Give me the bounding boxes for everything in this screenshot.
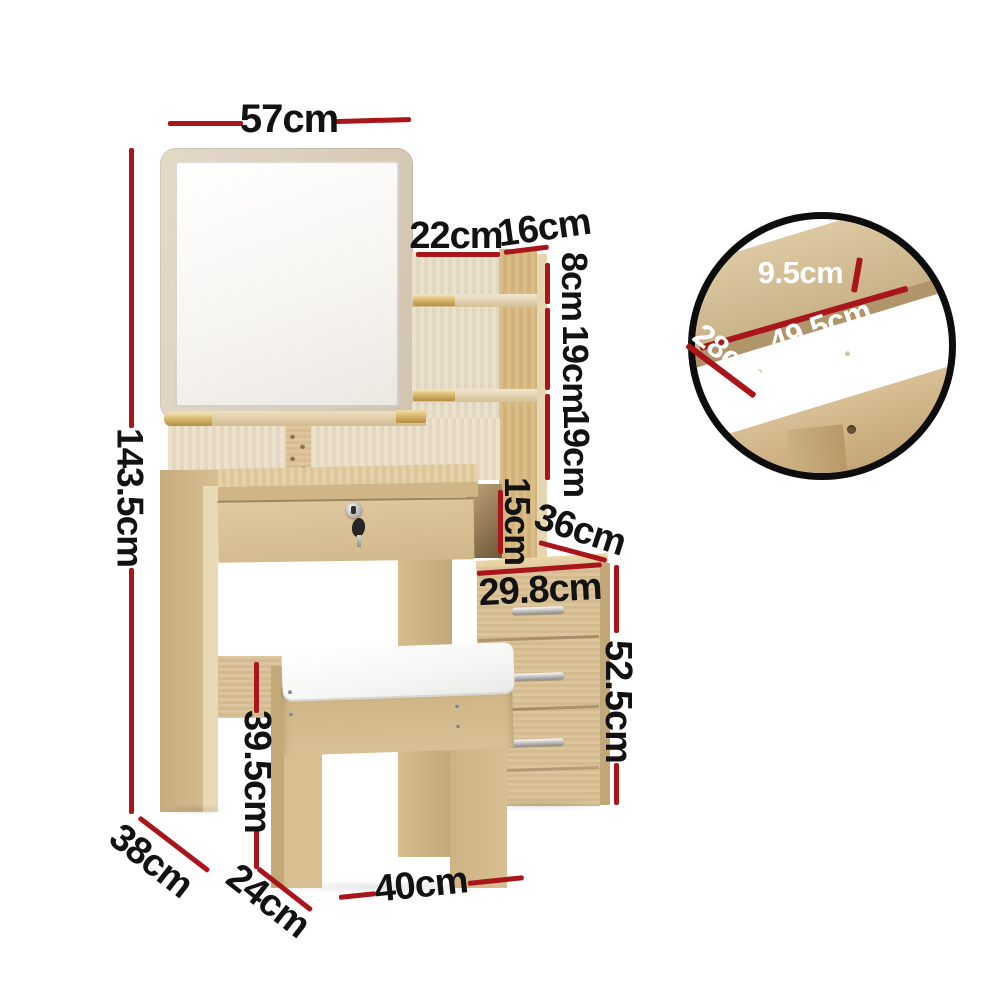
key-stem bbox=[357, 535, 361, 547]
screw bbox=[845, 351, 850, 356]
label-mirror-width: 57cm bbox=[214, 96, 364, 142]
label-gap-top: 8cm bbox=[552, 252, 596, 322]
screw bbox=[290, 434, 295, 439]
inset-keyhole bbox=[847, 425, 856, 434]
screw bbox=[455, 704, 459, 708]
screw bbox=[290, 456, 295, 461]
under-mirror-shelf-gold-left bbox=[164, 413, 212, 426]
label-drawer-depth: 9.5cm bbox=[748, 252, 853, 292]
screw bbox=[288, 690, 292, 694]
lock-keyhole bbox=[351, 506, 356, 514]
screw bbox=[289, 712, 293, 716]
label-overall-height: 143.5cm bbox=[106, 423, 154, 573]
shelf-gold-edge-upper bbox=[413, 295, 455, 306]
screw bbox=[456, 724, 460, 728]
label-cabinet-height: 52.5cm bbox=[596, 636, 640, 766]
dim-line-19cm-low bbox=[545, 394, 550, 480]
label-stool-width: 40cm bbox=[369, 857, 473, 913]
label-cabinet-width: 29.8cm bbox=[474, 565, 606, 616]
desk-left-panel-inner-face bbox=[203, 486, 218, 812]
dim-line-52.5cm-bottom bbox=[614, 763, 619, 805]
shelf-gold-edge-lower bbox=[413, 390, 455, 401]
floor-shadow bbox=[160, 804, 230, 816]
screw bbox=[300, 444, 305, 449]
label-stool-height: 39.5cm bbox=[235, 706, 279, 836]
label-gap-low: 19cm bbox=[554, 406, 598, 501]
label-shelf-span-left: 22cm bbox=[406, 214, 506, 258]
label-gap-mid: 19cm bbox=[553, 322, 597, 417]
stool-cushion bbox=[281, 642, 515, 700]
label-shelf-span-right: 16cm bbox=[491, 199, 596, 256]
dim-line-19cm-mid bbox=[545, 308, 550, 390]
dim-line-52.5cm-top bbox=[614, 565, 619, 633]
dim-line-143cm-top bbox=[129, 148, 134, 428]
dim-line-8cm bbox=[545, 263, 550, 304]
mirror-glass bbox=[175, 161, 399, 407]
under-mirror-shelf-gold-right bbox=[396, 410, 426, 423]
dim-line-143cm-bottom bbox=[129, 568, 134, 814]
inset-drawer-leg bbox=[787, 424, 851, 480]
dimension-diagram: 57cm 143.5cm 22cm 16cm 8cm 19cm 19cm 15c… bbox=[0, 0, 1000, 1000]
